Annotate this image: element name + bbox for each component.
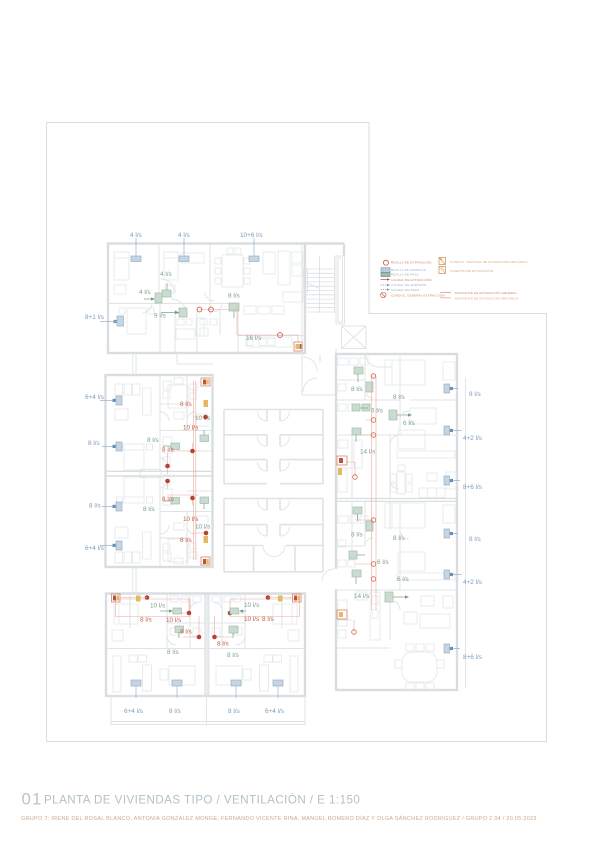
svg-text:6+4 l/s: 6+4 l/s <box>85 545 104 552</box>
svg-text:10+6 l/s: 10+6 l/s <box>240 232 263 239</box>
svg-text:8 l/s: 8 l/s <box>180 537 192 544</box>
svg-text:4 l/s: 4 l/s <box>130 232 142 239</box>
svg-text:8 l/s: 8 l/s <box>140 617 152 624</box>
svg-text:CONDUC. GENERAL EXTRACCIÓN: CONDUC. GENERAL EXTRACCIÓN <box>391 292 445 297</box>
svg-text:8 l/s: 8 l/s <box>89 503 101 510</box>
svg-text:8 l/s: 8 l/s <box>351 386 363 393</box>
svg-text:8+1 l/s: 8+1 l/s <box>85 314 104 321</box>
svg-text:8 l/s: 8 l/s <box>143 506 155 513</box>
svg-text:6 l/s: 6 l/s <box>371 408 383 415</box>
svg-text:PLANTA DE VIVIENDAS TIPO / VEN: PLANTA DE VIVIENDAS TIPO / VENTILACIÓN /… <box>44 794 360 807</box>
svg-text:10 l/s: 10 l/s <box>244 616 259 623</box>
svg-text:CASETÓN DE EXTRACCIÓN: CASETÓN DE EXTRACCIÓN <box>450 268 493 273</box>
svg-text:8+6 l/s: 8+6 l/s <box>463 654 482 661</box>
svg-text:10 l/s: 10 l/s <box>166 617 181 624</box>
svg-text:CAUDAL DE ADMISIÓN: CAUDAL DE ADMISIÓN <box>391 282 426 287</box>
svg-text:8 l/s: 8 l/s <box>393 535 405 542</box>
svg-text:CAUDAL DE PASO: CAUDAL DE PASO <box>391 288 420 292</box>
svg-text:01: 01 <box>22 790 43 809</box>
svg-text:CONDUC. VERTICAL DE EXTRACCIÓN: CONDUC. VERTICAL DE EXTRACCIÓN MECÁNICA <box>450 259 528 264</box>
svg-text:10 l/s: 10 l/s <box>183 425 198 432</box>
svg-text:16 l/s: 16 l/s <box>246 335 261 342</box>
svg-text:REJILLA DE EXTRACCIÓN: REJILLA DE EXTRACCIÓN <box>391 260 431 265</box>
svg-text:6+4 l/s: 6+4 l/s <box>85 394 104 401</box>
svg-text:4+2 l/s: 4+2 l/s <box>463 579 482 586</box>
svg-text:10 l/s: 10 l/s <box>195 415 210 422</box>
svg-text:8 l/s: 8 l/s <box>393 394 405 401</box>
svg-text:6 l/s: 6 l/s <box>377 559 389 566</box>
svg-text:10 l/s: 10 l/s <box>183 516 198 523</box>
svg-text:10 l/s: 10 l/s <box>244 602 259 609</box>
svg-text:REJILLA DE ADMISIÓN: REJILLA DE ADMISIÓN <box>391 267 426 272</box>
svg-text:8 l/s: 8 l/s <box>167 649 179 656</box>
svg-text:REJILLA DE PASO: REJILLA DE PASO <box>391 273 419 277</box>
svg-text:8 l/s: 8 l/s <box>180 629 192 636</box>
svg-text:6 l/s: 6 l/s <box>397 576 409 583</box>
svg-text:8 l/s: 8 l/s <box>469 536 481 543</box>
svg-text:14 l/s: 14 l/s <box>360 449 375 456</box>
svg-text:9 l/s: 9 l/s <box>154 313 166 320</box>
svg-text:8 l/s: 8 l/s <box>88 440 100 447</box>
svg-text:8 l/s: 8 l/s <box>217 641 229 648</box>
svg-text:MONTANTE DE EXTRACCIÓN GENERAL: MONTANTE DE EXTRACCIÓN GENERAL <box>455 290 517 295</box>
svg-text:6+4 l/s: 6+4 l/s <box>265 708 284 715</box>
svg-text:8 l/s: 8 l/s <box>162 496 174 503</box>
svg-text:4 l/s: 4 l/s <box>178 232 190 239</box>
svg-text:4 l/s: 4 l/s <box>139 289 151 296</box>
svg-text:GRUPO 7: IRENE DEL ROSAL BLANC: GRUPO 7: IRENE DEL ROSAL BLANCO, ANTONIA… <box>21 815 537 822</box>
svg-text:4 l/s: 4 l/s <box>160 271 172 278</box>
svg-text:8 l/s: 8 l/s <box>180 401 192 408</box>
svg-text:MONTANTE DE EXTRACCIÓN MECÁNIC: MONTANTE DE EXTRACCIÓN MECÁNICA <box>455 295 520 300</box>
svg-text:8 l/s: 8 l/s <box>147 437 159 444</box>
svg-text:8 l/s: 8 l/s <box>469 391 481 398</box>
svg-text:6 l/s: 6 l/s <box>403 420 415 427</box>
svg-text:4+2 l/s: 4+2 l/s <box>463 435 482 442</box>
svg-text:14 l/s: 14 l/s <box>354 593 369 600</box>
svg-text:8 l/s: 8 l/s <box>169 708 181 715</box>
svg-text:CAUDAL DE EXTRACCIÓN: CAUDAL DE EXTRACCIÓN <box>391 277 432 282</box>
svg-text:6+4 l/s: 6+4 l/s <box>124 708 143 715</box>
svg-text:8 l/s: 8 l/s <box>262 616 274 623</box>
svg-text:8 l/s: 8 l/s <box>227 652 239 659</box>
svg-text:8 l/s: 8 l/s <box>162 447 174 454</box>
svg-text:10 l/s: 10 l/s <box>150 603 165 610</box>
svg-text:8 l/s: 8 l/s <box>228 293 240 300</box>
svg-text:8 l/s: 8 l/s <box>351 532 363 539</box>
svg-text:10 l/s: 10 l/s <box>195 524 210 531</box>
svg-text:8 l/s: 8 l/s <box>228 708 240 715</box>
svg-text:8+6 l/s: 8+6 l/s <box>463 484 482 491</box>
